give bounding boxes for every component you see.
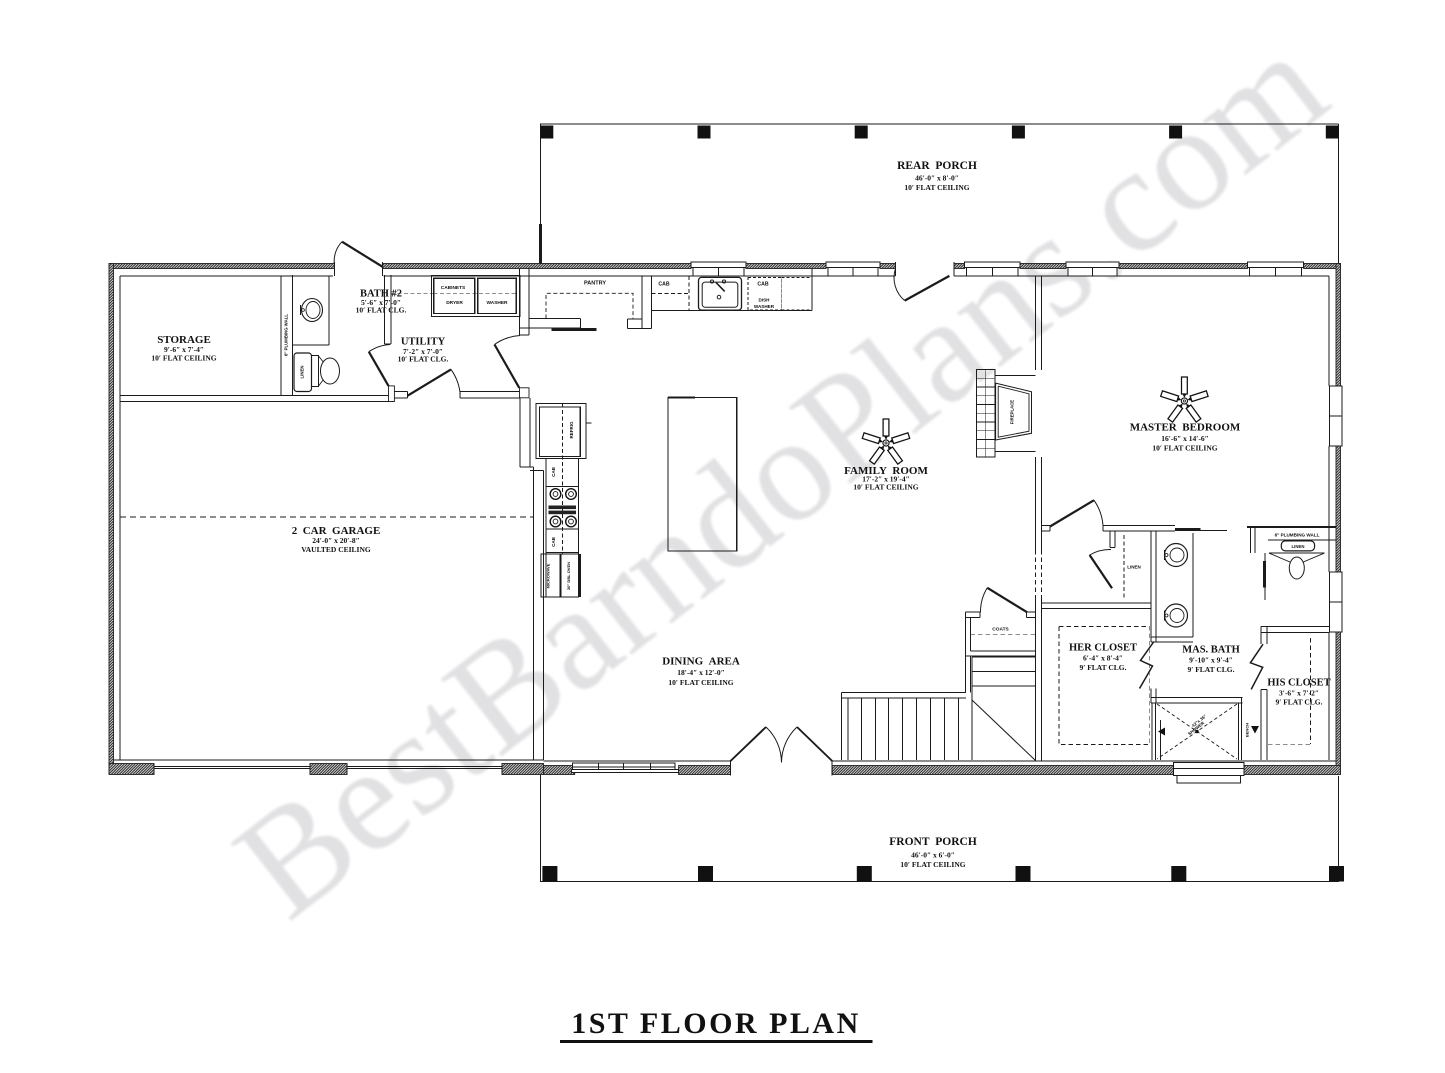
svg-text:CAB: CAB xyxy=(658,282,669,288)
svg-text:46′-0″ x 6′-0″: 46′-0″ x 6′-0″ xyxy=(911,851,955,860)
svg-text:CAB: CAB xyxy=(757,282,768,288)
svg-text:HER CLOSET: HER CLOSET xyxy=(1069,643,1137,654)
svg-text:MAS. BATH: MAS. BATH xyxy=(1182,645,1240,656)
svg-text:10′ FLAT CLG.: 10′ FLAT CLG. xyxy=(356,306,407,315)
svg-text:BENCH: BENCH xyxy=(1245,723,1250,737)
svg-text:10′ FLAT CEILING: 10′ FLAT CEILING xyxy=(668,678,733,687)
svg-text:CAB: CAB xyxy=(551,466,556,476)
svg-text:LINEN: LINEN xyxy=(300,366,305,379)
svg-text:18′-4″ x 12′-0″: 18′-4″ x 12′-0″ xyxy=(677,668,725,677)
svg-text:REFRIG: REFRIG xyxy=(569,421,574,439)
svg-text:46′-0″ x 8′-0″: 46′-0″ x 8′-0″ xyxy=(915,174,959,183)
svg-text:6″ PLUMBING WALL: 6″ PLUMBING WALL xyxy=(1275,533,1320,538)
svg-text:MICROWAVE: MICROWAVE xyxy=(546,563,551,588)
svg-text:DISH: DISH xyxy=(759,298,771,303)
svg-text:6″ PLUMBING WALL: 6″ PLUMBING WALL xyxy=(284,314,289,356)
svg-text:9′ FLAT CLG.: 9′ FLAT CLG. xyxy=(1187,665,1234,674)
svg-text:REAR PORCH: REAR PORCH xyxy=(897,160,977,172)
svg-text:FRONT PORCH: FRONT PORCH xyxy=(889,836,977,848)
svg-text:CAB: CAB xyxy=(551,536,556,546)
svg-text:LINEN: LINEN xyxy=(1127,565,1141,570)
svg-text:6′-4″ x 8′-4″: 6′-4″ x 8′-4″ xyxy=(1083,654,1123,663)
svg-text:HIS CLOSET: HIS CLOSET xyxy=(1267,678,1330,689)
svg-text:LINEN: LINEN xyxy=(1292,544,1305,549)
svg-text:MASTER BEDROOM: MASTER BEDROOM xyxy=(1130,422,1241,434)
svg-text:1ST FLOOR PLAN: 1ST FLOOR PLAN xyxy=(571,1007,861,1040)
svg-text:10′ FLAT CLG.: 10′ FLAT CLG. xyxy=(398,355,449,364)
svg-text:DRYER: DRYER xyxy=(446,300,463,306)
svg-text:9′-10″ x 9′-4″: 9′-10″ x 9′-4″ xyxy=(1189,656,1233,665)
svg-text:FIREPLACE: FIREPLACE xyxy=(1010,400,1015,424)
svg-text:WASHER: WASHER xyxy=(754,304,775,309)
svg-text:VAULTED CEILING: VAULTED CEILING xyxy=(301,545,371,554)
svg-text:10′ FLAT CEILING: 10′ FLAT CEILING xyxy=(904,183,969,192)
svg-text:10′ FLAT CEILING: 10′ FLAT CEILING xyxy=(151,354,216,363)
svg-text:3′-6″ x 7′-2″: 3′-6″ x 7′-2″ xyxy=(1279,689,1319,698)
svg-text:9′ FLAT CLG.: 9′ FLAT CLG. xyxy=(1275,698,1322,707)
svg-text:PANTRY: PANTRY xyxy=(584,281,606,287)
svg-text:24′-0″ x 20′-8″: 24′-0″ x 20′-8″ xyxy=(312,536,360,545)
svg-text:10′ FLAT CEILING: 10′ FLAT CEILING xyxy=(853,483,918,492)
svg-text:9′ FLAT CLG.: 9′ FLAT CLG. xyxy=(1079,663,1126,672)
svg-text:10′ FLAT CEILING: 10′ FLAT CEILING xyxy=(900,860,965,869)
svg-text:10′ FLAT CEILING: 10′ FLAT CEILING xyxy=(1152,444,1217,453)
svg-text:WASHER: WASHER xyxy=(486,300,508,306)
svg-text:16′-6″ x 14′-6″: 16′-6″ x 14′-6″ xyxy=(1161,434,1209,443)
svg-text:30″ DBL OVEN: 30″ DBL OVEN xyxy=(566,562,571,590)
svg-text:COATS: COATS xyxy=(992,627,1009,633)
svg-text:DINING AREA: DINING AREA xyxy=(662,656,740,668)
svg-text:UTILITY: UTILITY xyxy=(401,337,446,348)
svg-text:CABINETS: CABINETS xyxy=(441,285,466,291)
